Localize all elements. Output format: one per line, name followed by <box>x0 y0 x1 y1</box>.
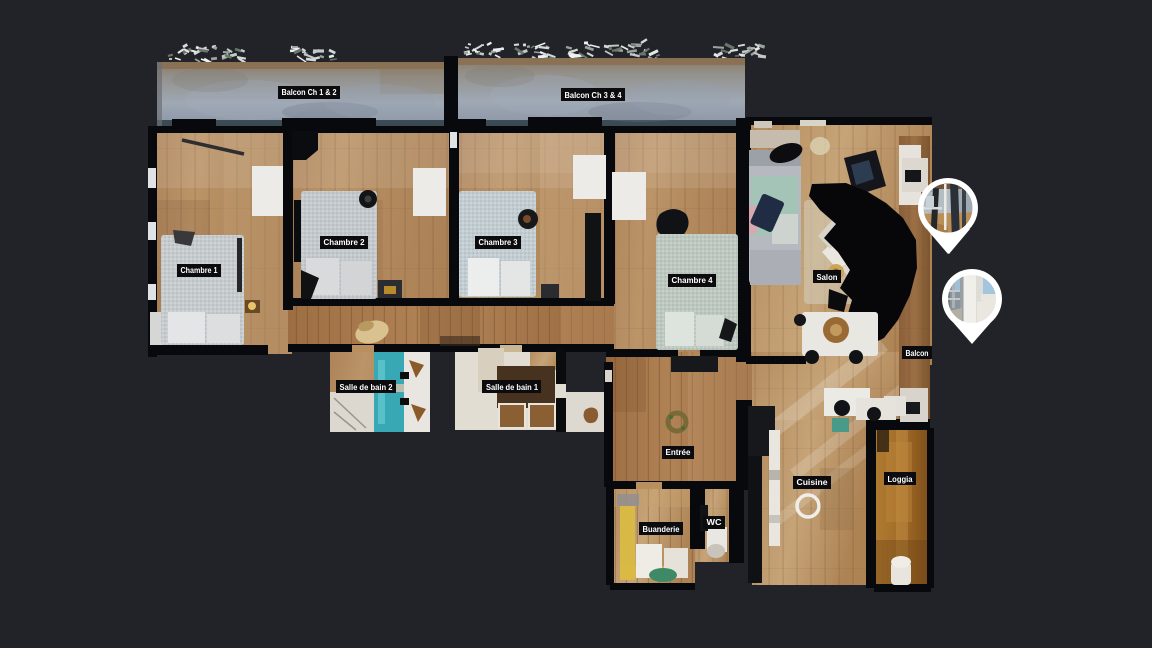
svg-text:Salle de bain 2: Salle de bain 2 <box>340 383 394 392</box>
svg-text:Loggia: Loggia <box>888 475 914 484</box>
svg-text:Buanderie: Buanderie <box>643 525 681 534</box>
svg-text:Chambre 4: Chambre 4 <box>672 276 714 285</box>
svg-text:Balcon Ch 3 & 4: Balcon Ch 3 & 4 <box>565 91 623 100</box>
svg-text:Cuisine: Cuisine <box>797 478 829 487</box>
svg-text:Salle de bain 1: Salle de bain 1 <box>486 383 539 392</box>
svg-text:Chambre 2: Chambre 2 <box>324 238 366 247</box>
svg-text:Chambre 1: Chambre 1 <box>181 266 218 275</box>
svg-text:Entrée: Entrée <box>666 448 692 457</box>
svg-text:Balcon: Balcon <box>906 349 929 358</box>
svg-text:Chambre 3: Chambre 3 <box>479 238 519 247</box>
svg-text:Salon: Salon <box>817 273 838 282</box>
svg-text:Balcon Ch 1 & 2: Balcon Ch 1 & 2 <box>282 88 337 97</box>
svg-text:WC: WC <box>707 518 722 527</box>
